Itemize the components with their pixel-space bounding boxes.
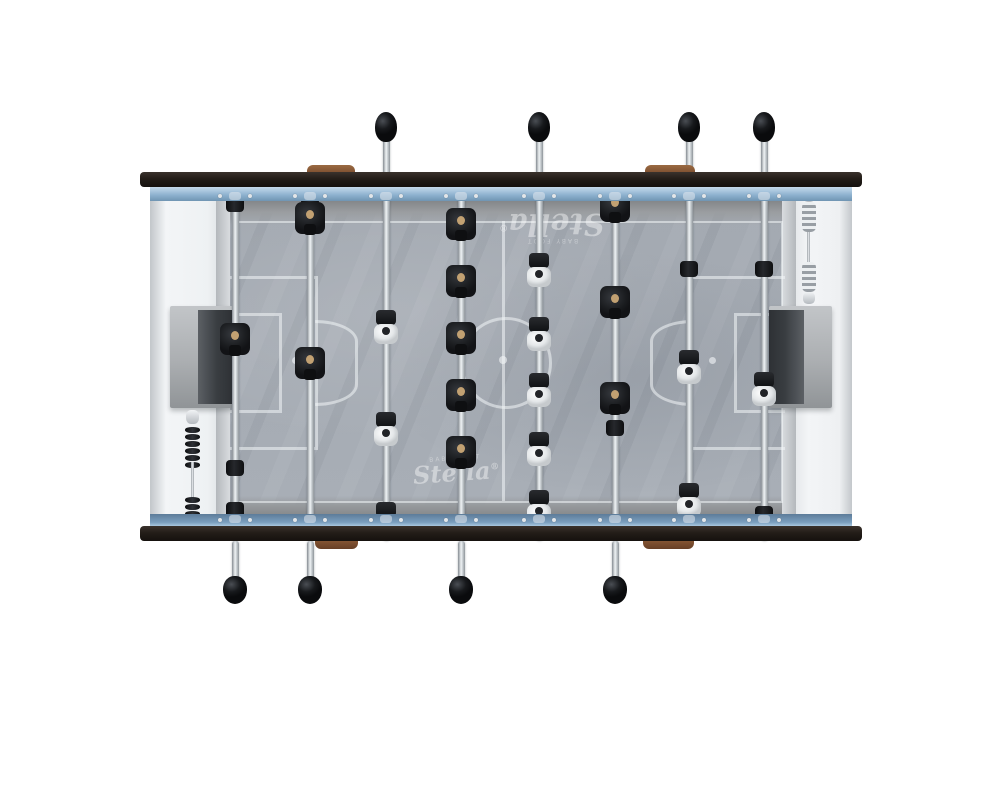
rod-bearing — [609, 192, 621, 200]
player-rod — [536, 187, 543, 541]
rod-bearing — [229, 515, 241, 523]
handle-knob — [678, 112, 700, 142]
player-toe — [304, 224, 316, 235]
wall-screw — [399, 194, 403, 198]
rod-bumper — [755, 261, 773, 277]
wall-screw — [777, 194, 781, 198]
player-toe — [455, 230, 467, 241]
player-toe — [455, 287, 467, 298]
penalty-spot-right — [709, 357, 716, 364]
wall-screw — [323, 194, 327, 198]
wall-screw — [369, 518, 373, 522]
player-rod — [612, 187, 619, 541]
player-counterweight — [529, 490, 549, 505]
player-face-detail — [457, 387, 465, 396]
player-counterweight — [529, 432, 549, 447]
rod-bearing — [455, 515, 467, 523]
wall-screw — [777, 518, 781, 522]
handle-shaft — [761, 138, 768, 176]
wall-screw — [522, 194, 526, 198]
player-counterweight — [529, 373, 549, 388]
wall-screw — [248, 194, 252, 198]
rod-bearing — [609, 515, 621, 523]
wall-screw — [702, 518, 706, 522]
handle-knob — [223, 576, 247, 604]
player-toe — [609, 308, 621, 319]
wall-screw — [474, 194, 478, 198]
player-head-detail — [685, 500, 693, 508]
player-toe — [455, 401, 467, 412]
rod-bearing — [304, 515, 316, 523]
player-head-detail — [535, 449, 543, 457]
player-counterweight — [529, 253, 549, 268]
wall-screw — [628, 194, 632, 198]
wall-screw — [444, 518, 448, 522]
wall-screw — [628, 518, 632, 522]
rod-bearing — [533, 515, 545, 523]
rod-bearing — [455, 192, 467, 200]
wall-screw — [474, 518, 478, 522]
player-counterweight — [376, 412, 396, 427]
player-head-detail — [535, 334, 543, 342]
wall-screw — [369, 194, 373, 198]
wall-screw — [218, 518, 222, 522]
table-scene — [0, 0, 1000, 800]
player-toe — [609, 404, 621, 415]
wall-screw — [747, 194, 751, 198]
score-counter-spring — [802, 202, 816, 232]
rod-bearing — [758, 515, 770, 523]
score-counter-spring — [802, 262, 816, 292]
wall-screw — [672, 194, 676, 198]
score-counter-bead — [185, 427, 200, 433]
player-head-detail — [382, 429, 390, 437]
player-face-detail — [306, 210, 314, 219]
handle-knob — [603, 576, 627, 604]
player-toe — [455, 344, 467, 355]
player-rod — [232, 187, 239, 541]
player-face-detail — [231, 331, 239, 340]
handle-shaft — [536, 138, 543, 176]
wall-screw — [552, 194, 556, 198]
player-face-detail — [611, 390, 619, 399]
player-head-detail — [382, 327, 390, 335]
player-face-detail — [457, 330, 465, 339]
player-face-detail — [306, 355, 314, 364]
score-counter-rod — [807, 232, 810, 262]
player-face-detail — [457, 444, 465, 453]
player-counterweight — [376, 310, 396, 325]
wall-screw — [293, 518, 297, 522]
wall-screw — [552, 518, 556, 522]
score-counter-rod — [191, 462, 194, 497]
wall-screw — [444, 194, 448, 198]
rod-bearing — [304, 192, 316, 200]
player-face-detail — [457, 216, 465, 225]
wall-screw — [218, 194, 222, 198]
wall-screw — [672, 518, 676, 522]
bottom-rail — [140, 526, 862, 541]
player-counterweight — [754, 372, 774, 387]
player-head-detail — [535, 390, 543, 398]
player-counterweight — [679, 483, 699, 498]
player-toe — [304, 369, 316, 380]
wall-screw — [323, 518, 327, 522]
player-head-detail — [535, 270, 543, 278]
player-face-detail — [611, 294, 619, 303]
handle-knob — [375, 112, 397, 142]
wall-screw — [293, 194, 297, 198]
wall-screw — [248, 518, 252, 522]
rod-bumper — [680, 261, 698, 277]
score-counter-bead — [185, 434, 200, 440]
rod-bumper — [606, 420, 624, 436]
player-rod — [761, 187, 768, 541]
top-rail — [140, 172, 862, 187]
rod-bearing — [229, 192, 241, 200]
player-face-detail — [457, 273, 465, 282]
rod-bearing — [683, 515, 695, 523]
rod-bearing — [380, 192, 392, 200]
score-counter-bead — [185, 441, 200, 447]
player-toe — [609, 212, 621, 223]
player-rod — [383, 187, 390, 541]
player-head-detail — [685, 367, 693, 375]
score-counter-ring — [803, 292, 815, 304]
rod-bearing — [758, 192, 770, 200]
rod-bearing — [533, 192, 545, 200]
score-counter-bead — [185, 504, 200, 510]
handle-shaft — [612, 541, 619, 579]
handle-shaft — [458, 541, 465, 579]
player-counterweight — [529, 317, 549, 332]
score-counter-bead — [185, 455, 200, 461]
wall-screw — [522, 518, 526, 522]
product-image-foosball-table: BABY FOOT Stella® BABY FOOT Stella® — [0, 0, 1000, 800]
handle-knob — [753, 112, 775, 142]
player-head-detail — [760, 389, 768, 397]
rod-bumper — [226, 460, 244, 476]
center-spot — [499, 356, 507, 364]
handle-knob — [528, 112, 550, 142]
rod-bearing — [683, 192, 695, 200]
wall-screw — [747, 518, 751, 522]
player-toe — [229, 345, 241, 356]
score-counter-knob — [186, 410, 199, 424]
score-counter-bead — [185, 448, 200, 454]
player-counterweight — [679, 350, 699, 365]
wall-screw — [702, 194, 706, 198]
handle-shaft — [307, 541, 314, 579]
player-toe — [455, 458, 467, 469]
score-counter-bead — [185, 497, 200, 503]
wall-screw — [598, 518, 602, 522]
rod-bearing — [380, 515, 392, 523]
handle-shaft — [232, 541, 239, 579]
handle-knob — [298, 576, 322, 604]
handle-knob — [449, 576, 473, 604]
handle-shaft — [383, 138, 390, 176]
wall-screw — [399, 518, 403, 522]
wall-screw — [598, 194, 602, 198]
